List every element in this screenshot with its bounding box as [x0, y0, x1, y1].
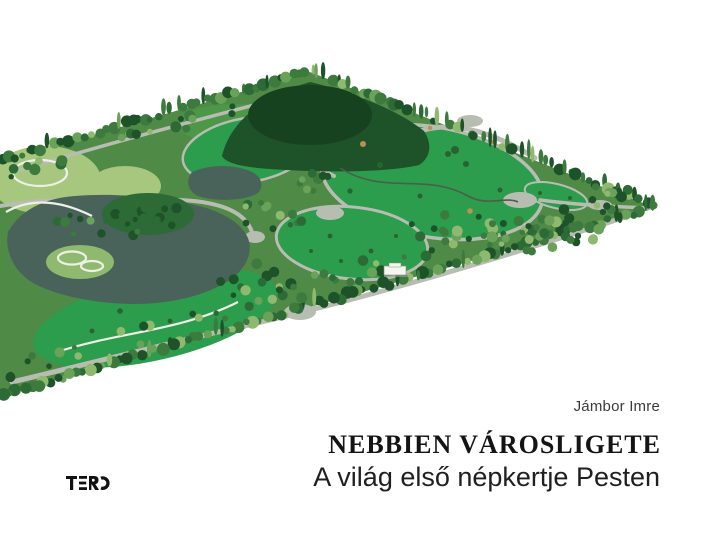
book-cover: Jámbor Imre NEBBIEN VÁROSLIGETE A világ … [0, 0, 722, 559]
garden-islet [46, 245, 114, 279]
book-subtitle: A világ első népkertje Pesten [313, 462, 660, 493]
book-title: NEBBIEN VÁROSLIGETE [328, 430, 661, 460]
terc-wordmark [66, 476, 108, 490]
park-illustration [0, 0, 722, 420]
publisher-logo-terc [66, 473, 110, 493]
author-name: Jámbor Imre [574, 398, 660, 415]
